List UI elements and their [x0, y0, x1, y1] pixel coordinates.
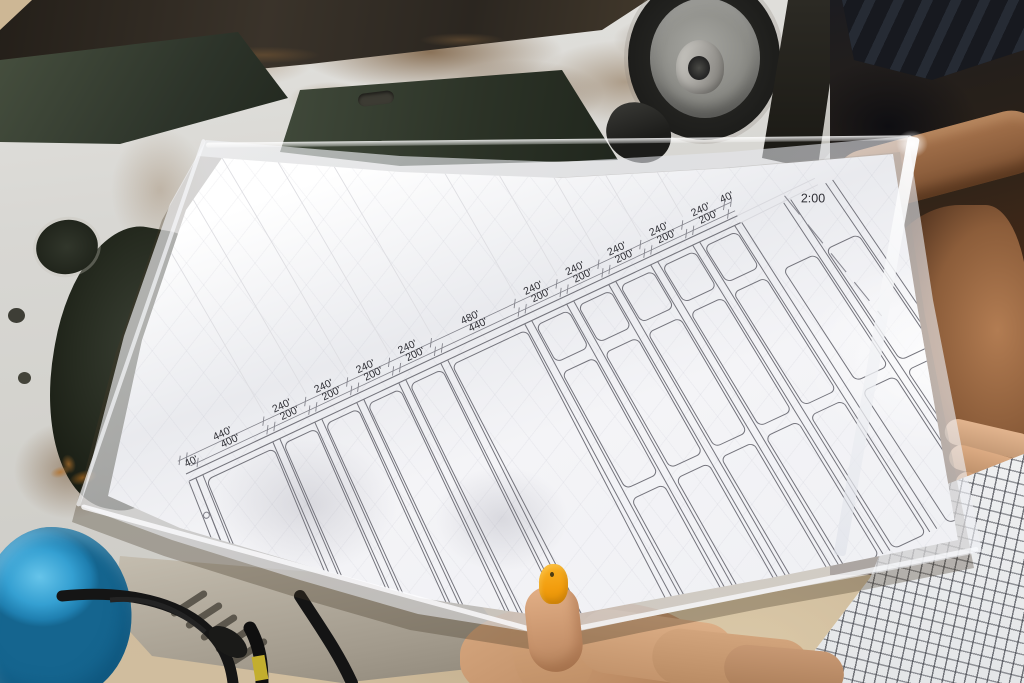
clock-street-label: 2:00	[801, 191, 825, 205]
thumb-nail	[539, 564, 568, 604]
cable	[62, 594, 233, 683]
measurement-label: 40'	[718, 189, 735, 206]
lamination-corner-glint	[896, 130, 928, 158]
thumb-nail-speck	[550, 572, 554, 577]
photo-scene: 440'400'240'200'240'200'240'200'240'200'…	[0, 0, 1024, 683]
cable-yellow-band	[258, 656, 262, 680]
measurement-label: 40'	[182, 453, 199, 470]
